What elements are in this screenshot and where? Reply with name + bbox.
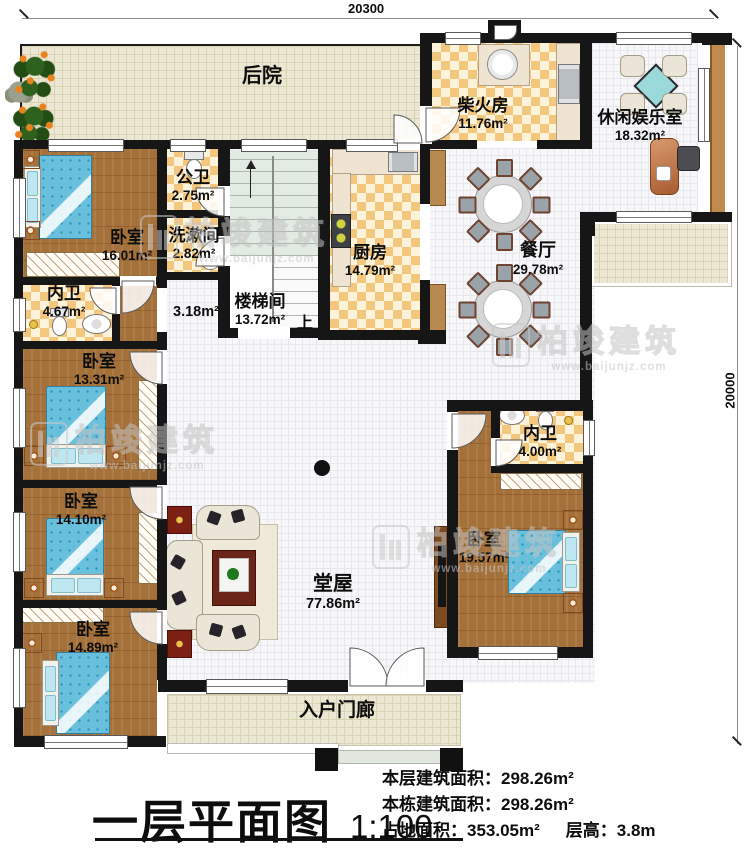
room-label-kitchen: 厨房 14.79m²: [345, 243, 395, 280]
room-label-ensuite2: 内卫 4.00m²: [519, 424, 562, 461]
room-label-public-bath: 公卫 2.75m²: [172, 168, 215, 205]
floor-plan: 20300 20000: [0, 0, 750, 855]
room-label-bedroom4: 卧室 19.57m²: [459, 530, 509, 567]
room-label-firewood: 柴火房 11.76m²: [458, 96, 509, 133]
stair-up-label: 上: [297, 314, 313, 333]
room-label-bedroom5: 卧室 14.89m²: [68, 620, 118, 657]
room-label-living: 堂屋 77.86m²: [306, 572, 360, 613]
room-label-stairwell: 楼梯间 13.72m²: [235, 292, 286, 329]
room-label-washroom: 洗漱间 2.82m²: [169, 226, 220, 263]
dimension-top-line: [22, 18, 714, 19]
room-label-dining: 餐厅 29.78m²: [513, 240, 563, 278]
hallway-area-label: 3.18m²: [173, 304, 219, 321]
room-label-bedroom2: 卧室 13.31m²: [74, 352, 124, 389]
plan-title-text: 一层平面图: [92, 786, 332, 852]
dimension-right-label: 20000: [723, 372, 738, 408]
dimension-top-label: 20300: [348, 1, 384, 16]
room-label-bedroom1: 卧室 16.01m²: [102, 228, 152, 265]
room-label-ensuite1: 内卫 4.67m²: [43, 284, 86, 321]
room-label-porch: 入户门廊: [299, 700, 375, 723]
area-statistics: 本层建筑面积：298.26m² 本栋建筑面积：298.26m² 占地面积：353…: [382, 766, 656, 844]
room-label-backyard: 后院: [242, 64, 282, 88]
room-label-leisure: 休闲娱乐室 18.32m²: [598, 108, 683, 145]
room-label-bedroom3: 卧室 14.10m²: [56, 492, 106, 529]
